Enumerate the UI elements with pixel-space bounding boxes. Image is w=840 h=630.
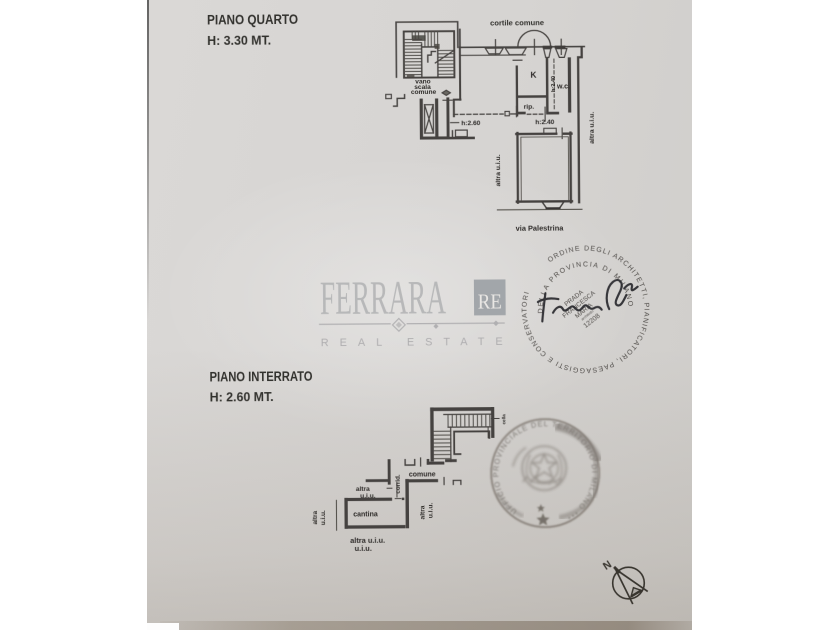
svg-text:corrid.: corrid. (395, 474, 402, 494)
svg-text:rip.: rip. (524, 104, 535, 111)
svg-text:via Palestrina: via Palestrina (516, 223, 565, 232)
svg-text:altra: altra (419, 505, 426, 519)
svg-text:comune: comune (409, 471, 436, 478)
svg-text:altra u.i.u.: altra u.i.u. (589, 112, 596, 144)
svg-text:cella: cella (501, 414, 506, 425)
svg-text:w.c.: w.c. (556, 83, 570, 90)
svg-text:K: K (530, 70, 536, 80)
svg-text:H: 2.60 MT.: H: 2.60 MT. (210, 389, 274, 404)
svg-text:REAL ESTATE: REAL ESTATE (321, 336, 511, 349)
svg-text:FERRARA: FERRARA (320, 271, 447, 325)
svg-text:h:2.60: h:2.60 (461, 120, 480, 127)
svg-text:PIANO QUARTO: PIANO QUARTO (207, 12, 298, 28)
svg-text:u.i.u.: u.i.u. (427, 503, 434, 519)
svg-text:PIANO INTERRATO: PIANO INTERRATO (209, 369, 312, 385)
svg-text:altra u.i.u.: altra u.i.u. (495, 154, 502, 186)
svg-text:N: N (601, 558, 614, 572)
svg-text:H: 3.30 MT.: H: 3.30 MT. (207, 33, 271, 48)
svg-text:comune: comune (411, 89, 437, 96)
svg-text:u.i.u.: u.i.u. (320, 510, 327, 525)
svg-text:u.i.u.: u.i.u. (355, 544, 372, 553)
svg-text:cortile comune: cortile comune (490, 18, 544, 27)
svg-text:altra: altra (312, 511, 319, 525)
svg-text:h:2.40: h:2.40 (535, 119, 554, 126)
svg-text:RE: RE (478, 289, 502, 313)
svg-text:cantina: cantina (353, 511, 378, 518)
